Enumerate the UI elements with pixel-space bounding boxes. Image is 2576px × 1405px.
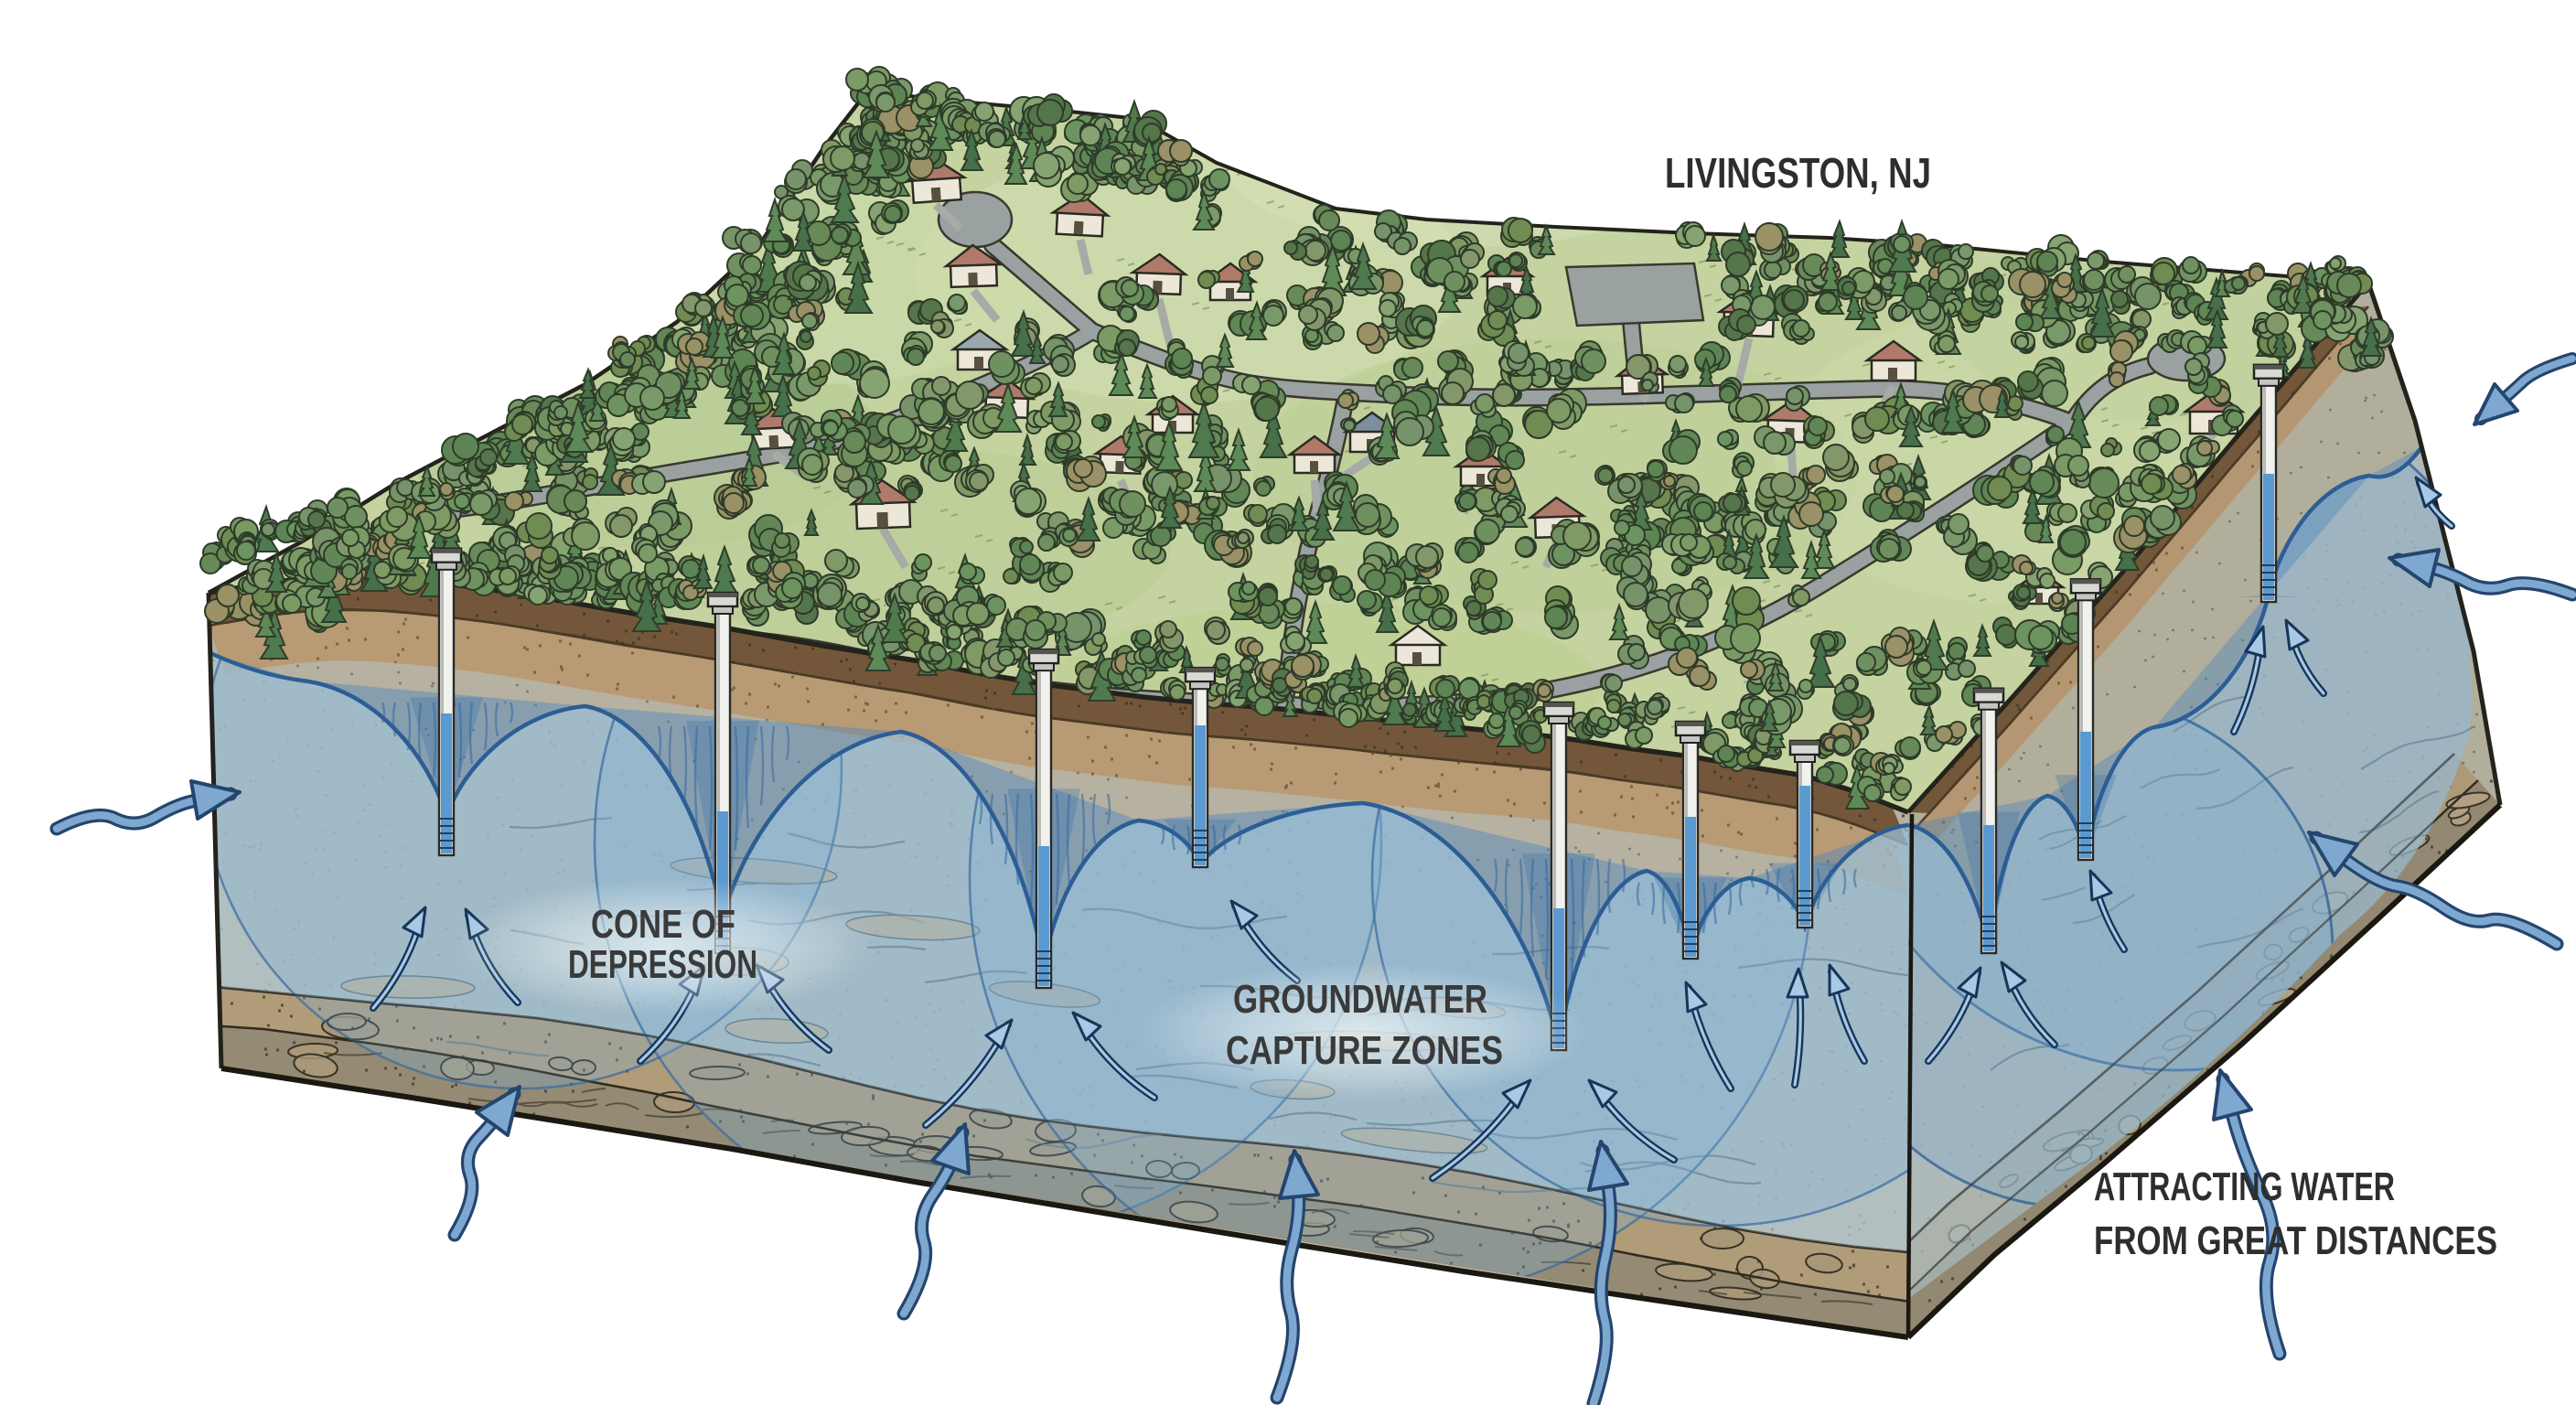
svg-text:GROUNDWATER: GROUNDWATER xyxy=(1233,977,1487,1022)
svg-text:FROM GREAT DISTANCES: FROM GREAT DISTANCES xyxy=(2094,1218,2497,1263)
svg-text:DEPRESSION: DEPRESSION xyxy=(568,942,757,987)
svg-text:ATTRACTING WATER: ATTRACTING WATER xyxy=(2094,1164,2395,1209)
svg-text:CAPTURE ZONES: CAPTURE ZONES xyxy=(1226,1028,1503,1073)
svg-text:LIVINGSTON, NJ: LIVINGSTON, NJ xyxy=(1665,149,1931,197)
svg-text:CONE OF: CONE OF xyxy=(591,902,735,947)
